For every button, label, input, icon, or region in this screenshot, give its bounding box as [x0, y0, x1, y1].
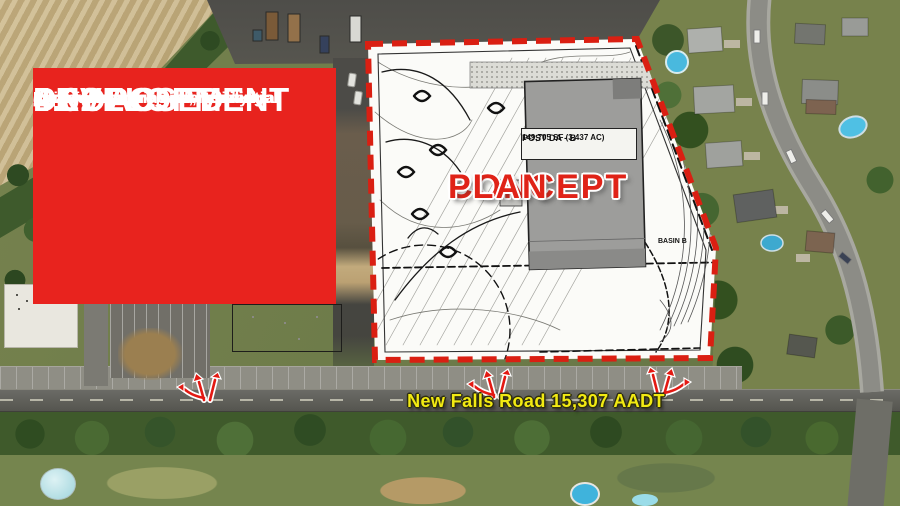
banner-description-line: approvals.	[33, 89, 113, 109]
building-data-label: POST DA - B 149,705 SF (3.437 AC)	[521, 128, 637, 160]
aerial-photo-canvas: POST DA - B 149,705 SF (3.437 AC) CONCEP…	[0, 0, 900, 506]
traffic-arrows-icon	[176, 364, 238, 404]
basin-label: BASIN B	[658, 238, 687, 245]
building-label-area: 149,705 SF (3.437 AC)	[522, 133, 604, 143]
proposed-development-banner: PROPOSED 4.02 AC DEVELOPMENT Redevelopme…	[33, 68, 336, 304]
road-name-label: New Falls Road 15,307 AADT	[366, 391, 706, 412]
watermark-line: PLAN	[448, 168, 549, 207]
